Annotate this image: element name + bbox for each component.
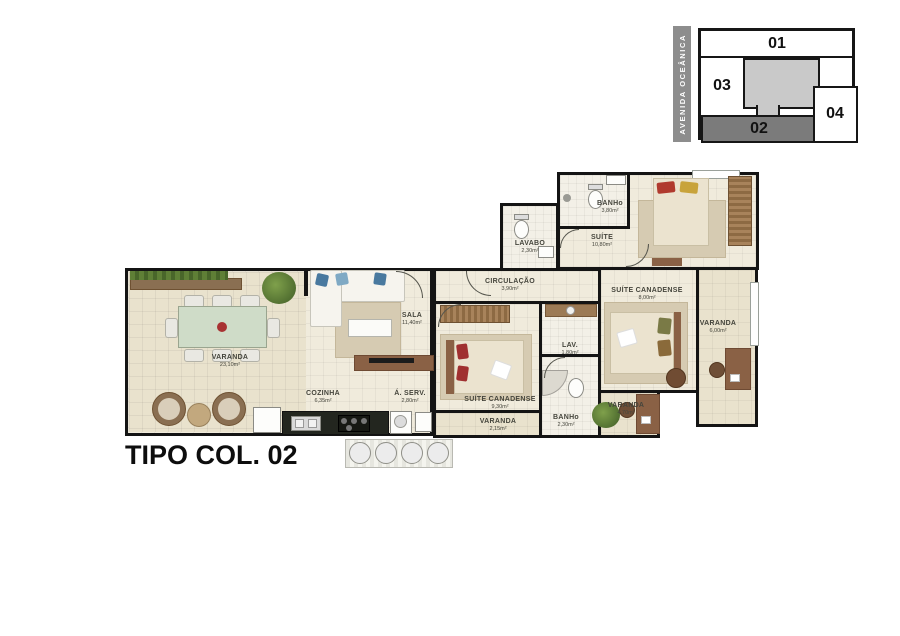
unit-04-label: 04	[826, 105, 844, 123]
bed-pillow	[657, 317, 672, 334]
dresser	[652, 258, 682, 266]
desk-chair	[709, 362, 725, 378]
bed-pillow	[656, 181, 675, 194]
unit-01-label: 01	[768, 35, 786, 53]
desk	[725, 348, 751, 390]
label-suite: SUÍTE10,80m²	[591, 234, 613, 248]
bed-headboard	[674, 312, 681, 374]
toilet	[568, 378, 584, 398]
bed-pillow	[456, 365, 469, 381]
stove-burner	[361, 418, 367, 424]
floor-plan: VARANDA23,10m² SALA11,40m² COZINHA6,35m²…	[120, 162, 770, 480]
ac-condenser	[401, 442, 423, 464]
sofa-pillow	[373, 272, 387, 286]
street-bar: AVENIDA OCEÂNICA	[673, 26, 691, 142]
label-cozinha: COZINHA6,35m²	[306, 390, 340, 404]
side-table	[666, 368, 686, 388]
washer-door	[394, 415, 407, 428]
side-table	[187, 403, 211, 427]
key-plan-building: 01 03 02 04	[698, 28, 855, 140]
dining-chair	[165, 318, 178, 338]
unit-02-label: 02	[750, 120, 768, 138]
wardrobe	[728, 176, 752, 246]
sink-bowl	[308, 419, 317, 428]
shower-head	[563, 194, 571, 202]
stove-burner	[346, 425, 352, 431]
street-label: AVENIDA OCEÂNICA	[678, 34, 687, 135]
label-varanda-center: VARANDA2,15m²	[480, 418, 517, 432]
sofa-pillow	[335, 272, 349, 286]
ac-condenser	[375, 442, 397, 464]
window-varanda-right	[750, 282, 759, 346]
tv	[369, 358, 414, 363]
label-varanda: VARANDA23,10m²	[212, 354, 249, 368]
key-plan: AVENIDA OCEÂNICA 01 03 02 04	[665, 18, 893, 144]
lounge-chair-cushion	[218, 398, 240, 420]
unit-03-label: 03	[713, 77, 731, 95]
plan-title: TIPO COL. 02	[125, 440, 298, 471]
room-lavabo	[500, 203, 559, 271]
table-centerpiece	[217, 322, 227, 332]
floor-plan-page: AVENIDA OCEÂNICA 01 03 02 04	[0, 0, 900, 636]
sink-bowl	[295, 419, 304, 428]
bed-pillow	[657, 339, 672, 356]
label-banho-bottom: BANHo2,30m²	[553, 414, 579, 428]
wall-stub-varanda-sala	[304, 270, 308, 296]
sofa-pillow	[315, 273, 329, 287]
key-plan-core	[743, 58, 820, 109]
label-lavabo: LAVABO2,30m²	[515, 240, 545, 254]
fridge	[253, 407, 281, 433]
lounge-chair-cushion	[158, 398, 180, 420]
bed-pillow	[679, 181, 698, 194]
coffee-table	[348, 319, 392, 337]
label-suite-canadense-center: SUÍTE CANADENSE9,30m²	[464, 396, 535, 410]
bed-headboard	[446, 340, 454, 394]
stove-burner	[351, 418, 357, 424]
planter-greenery	[130, 271, 228, 280]
laptop	[730, 374, 740, 382]
label-circulacao: CIRCULAÇÃO3,90m²	[485, 278, 535, 292]
label-suite-canadense-right: SUÍTE CANADENSE8,00m²	[611, 287, 682, 301]
laundry-tank	[415, 412, 432, 432]
label-varanda-bottom-right: VARANDA4,70m²	[608, 402, 645, 416]
notebook	[641, 416, 651, 424]
dining-chair	[184, 349, 204, 362]
ac-condenser	[427, 442, 449, 464]
label-aserv: Á. SERV.2,80m²	[394, 390, 426, 404]
label-sala: SALA11,40m²	[402, 312, 422, 326]
bed-pillow	[456, 343, 469, 359]
room-varanda-right	[696, 267, 758, 427]
label-lav: LAV.1,80m²	[561, 342, 578, 356]
label-varanda-right: VARANDA6,00m²	[700, 320, 737, 334]
stove-burner	[341, 418, 347, 424]
lav-basin	[566, 306, 575, 315]
ac-condenser	[349, 442, 371, 464]
dining-chair	[267, 318, 280, 338]
bath-sink	[606, 175, 626, 185]
toilet	[514, 220, 529, 239]
plant	[262, 272, 296, 304]
label-banho-suite: BANHo3,80m²	[597, 200, 623, 214]
